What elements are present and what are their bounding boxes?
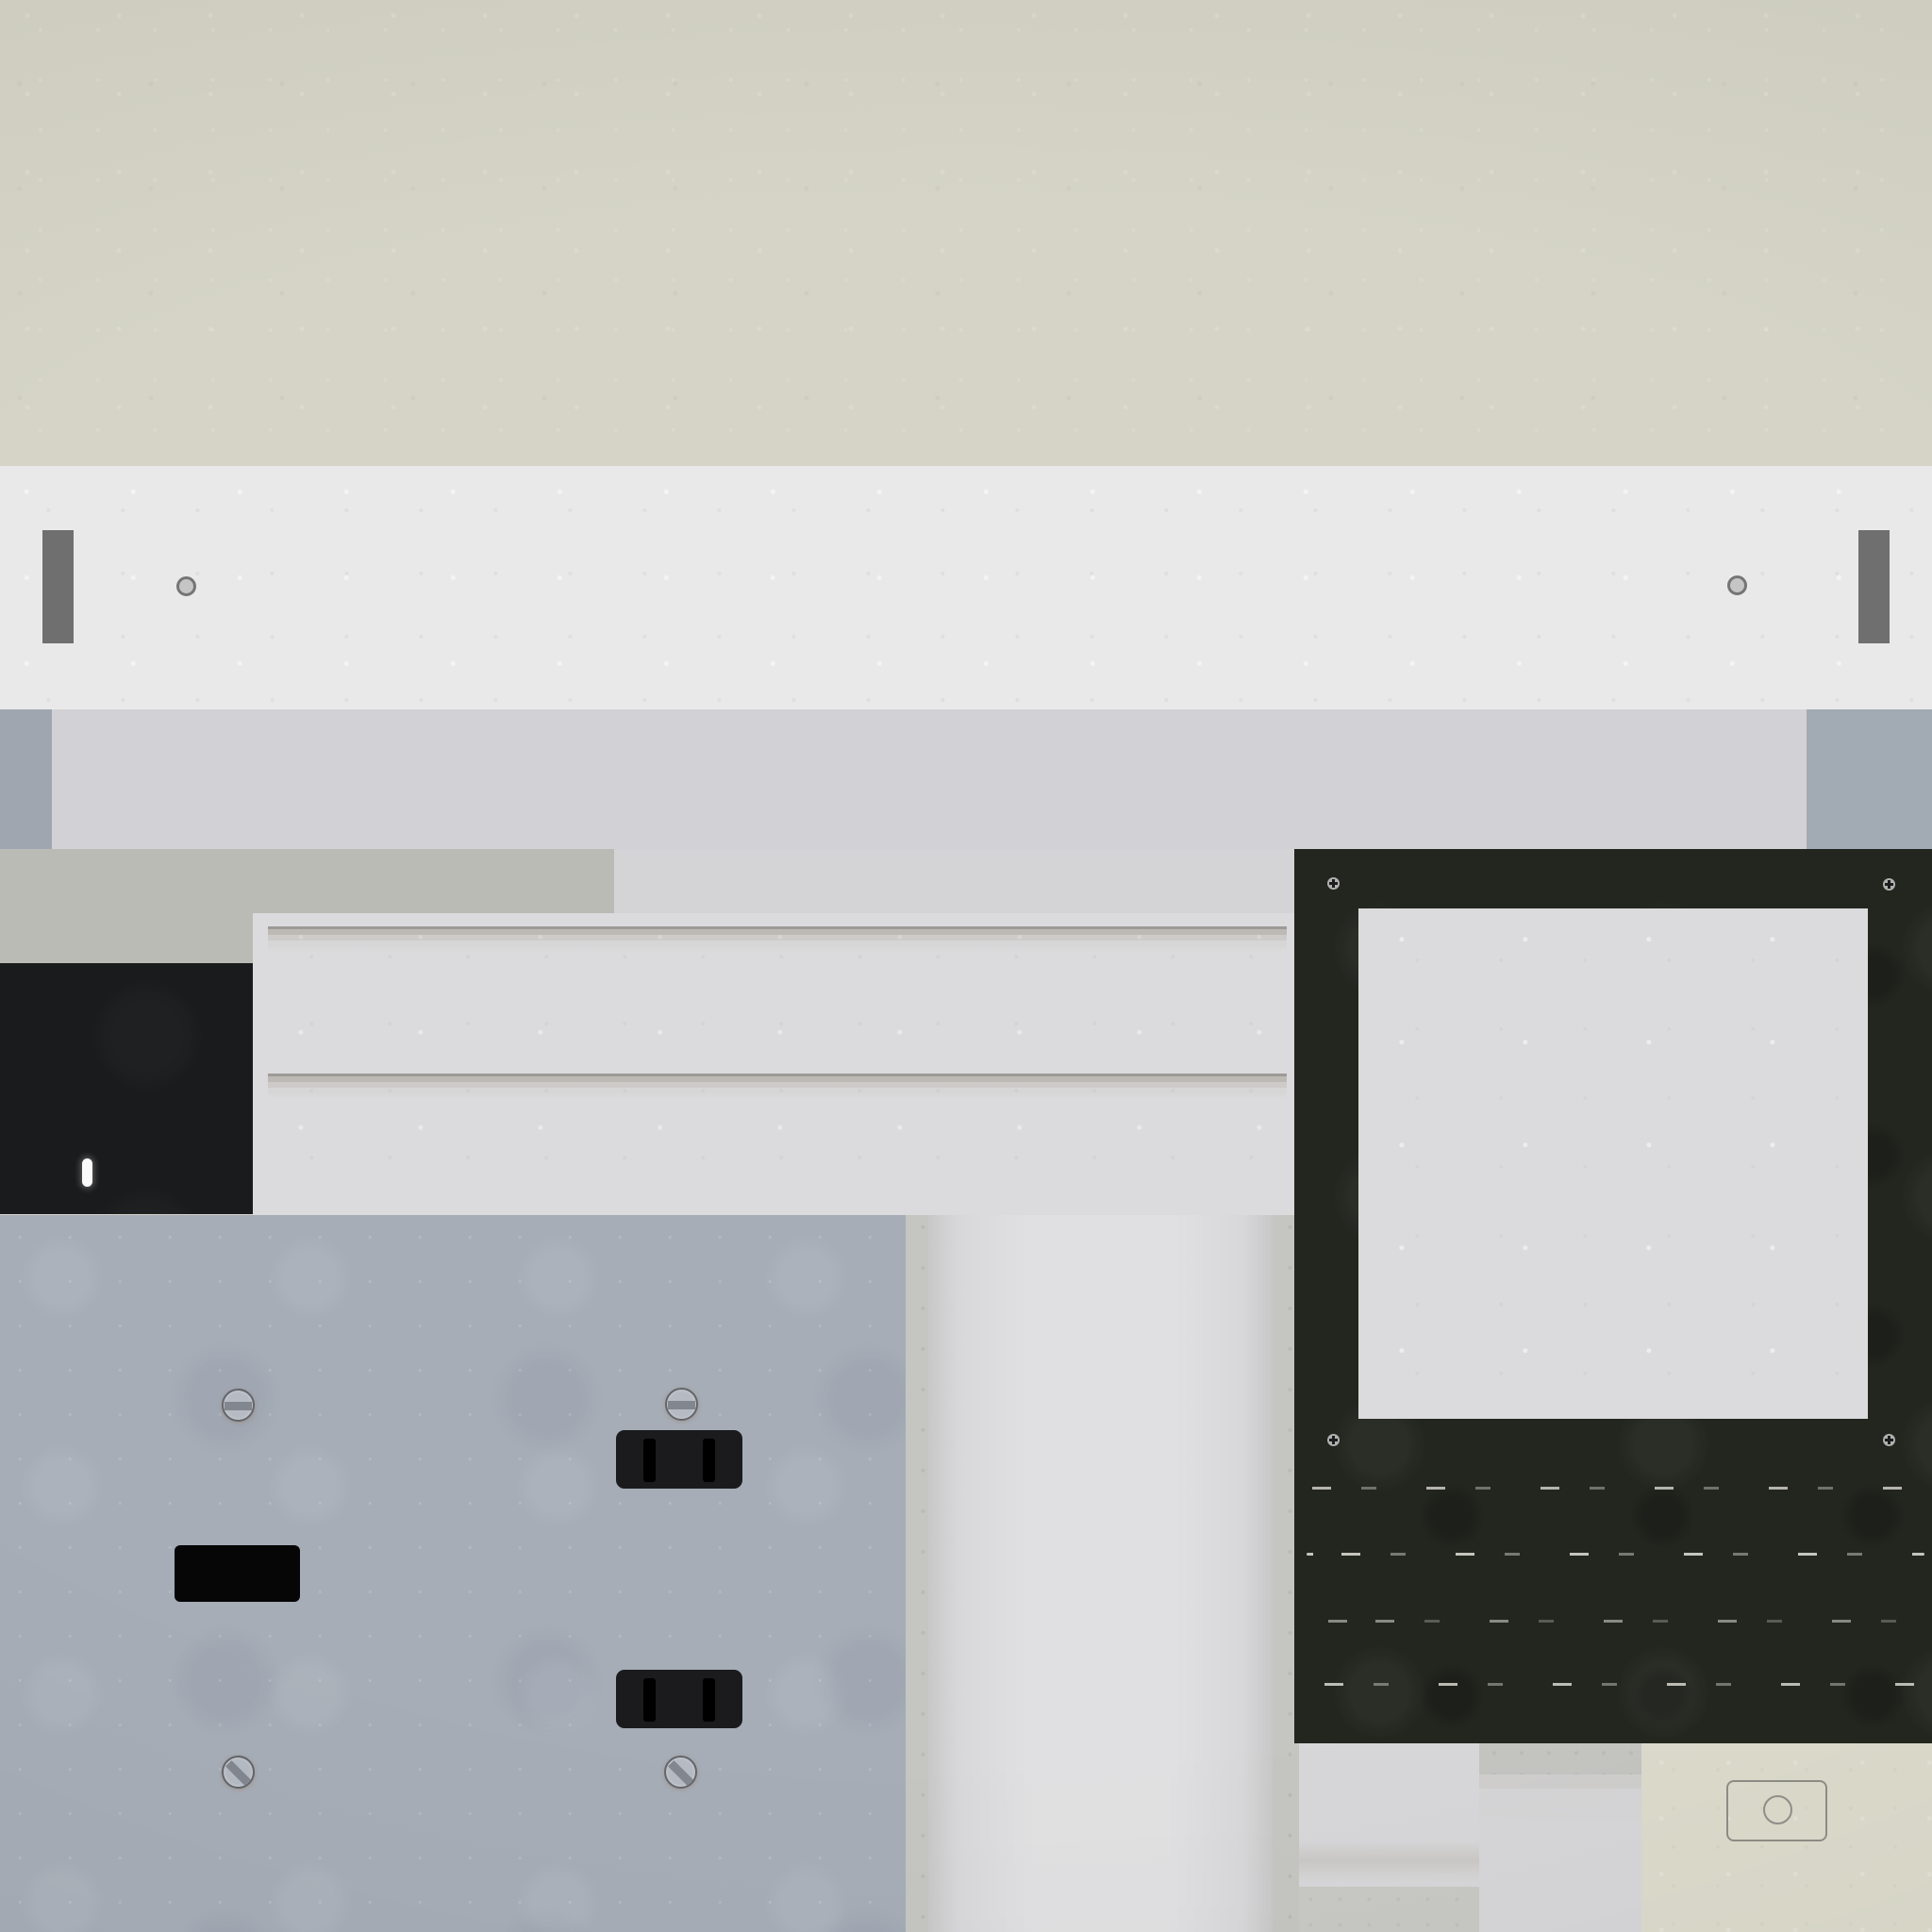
- lower-panel-right: [1479, 1774, 1641, 1932]
- flathead-screw-icon: [665, 1388, 698, 1421]
- outlet-slot: [643, 1439, 656, 1482]
- phillips-screw-icon: [1883, 1434, 1895, 1446]
- door-panel: [928, 1215, 1273, 1932]
- lower-panel-left: [1299, 1743, 1479, 1887]
- outlet-slot: [643, 1678, 656, 1722]
- wall-scene: [0, 0, 1932, 1932]
- under-band-right: [614, 849, 1297, 913]
- plate-circle: [1763, 1795, 1792, 1824]
- scratch-line: [1307, 1620, 1924, 1623]
- drawer-groove-top: [268, 926, 1287, 953]
- drawer-groove-bottom: [268, 1074, 1287, 1100]
- outlet-slot: [703, 1439, 715, 1482]
- flathead-screw-icon: [664, 1756, 697, 1789]
- peg-hole-right: [1727, 575, 1747, 595]
- power-outlet-upper: [616, 1430, 742, 1489]
- rail-bracket-right: [1858, 530, 1890, 643]
- screw-slot: [225, 1402, 252, 1410]
- side-block-right: [1807, 709, 1932, 849]
- scratch-line: [1307, 1683, 1924, 1686]
- rail-band: [0, 466, 1932, 709]
- upper-wall: [0, 0, 1932, 466]
- screw-slot: [668, 1401, 695, 1409]
- lower-panel-left-base: [1299, 1887, 1479, 1932]
- scratch-line: [1307, 1553, 1924, 1556]
- outlet-slot: [703, 1678, 715, 1722]
- phillips-screw-icon: [1883, 878, 1895, 891]
- drawer-panel: [253, 913, 1297, 1215]
- wall-plate-outline: [1726, 1780, 1827, 1841]
- side-strip-left: [0, 709, 52, 849]
- door-frame-left: [906, 1215, 928, 1932]
- phillips-screw-icon: [1327, 877, 1340, 890]
- paper-sheet: [1358, 908, 1868, 1419]
- flathead-screw-icon: [222, 1756, 255, 1789]
- peg-hole-left: [176, 576, 196, 596]
- black-display-panel: [0, 963, 253, 1214]
- mid-band: [0, 709, 1932, 849]
- screw-slot: [225, 1760, 251, 1786]
- flathead-screw-icon: [222, 1389, 255, 1422]
- indicator-slot: [82, 1158, 92, 1187]
- power-outlet-lower: [616, 1670, 742, 1728]
- rail-bracket-left: [42, 530, 74, 643]
- metal-access-panel: [0, 1215, 906, 1932]
- lower-ledge: [1479, 1743, 1641, 1774]
- black-label-plate: [175, 1545, 300, 1602]
- scratch-line: [1307, 1487, 1924, 1490]
- phillips-screw-icon: [1327, 1434, 1340, 1446]
- screw-slot: [668, 1760, 693, 1786]
